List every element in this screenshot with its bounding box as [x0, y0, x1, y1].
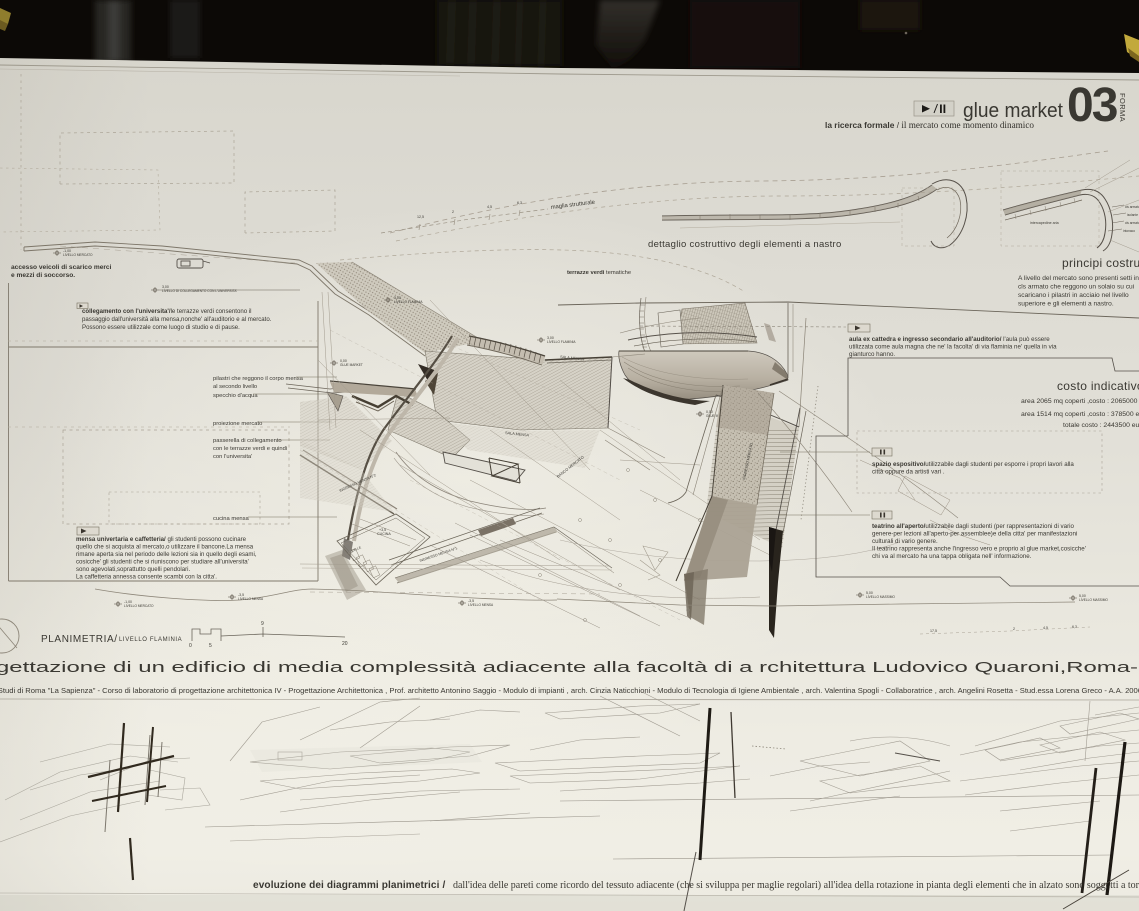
svg-text:2: 2: [1013, 627, 1015, 631]
svg-text:20: 20: [342, 641, 348, 647]
svg-text:LIVELLO MENSA: LIVELLO MENSA: [238, 597, 264, 601]
svg-text:aula ex cattedra e ingresso se: aula ex cattedra e ingresso secondario a…: [849, 336, 1050, 343]
svg-text:LIVELLO FLAMINIA: LIVELLO FLAMINIA: [547, 340, 576, 344]
svg-text:LIVELLO MERCATO: LIVELLO MERCATO: [124, 604, 154, 608]
svg-text:PLANIMETRIA/: PLANIMETRIA/: [41, 634, 118, 645]
svg-text:e mezzi di soccorso.: e mezzi di soccorso.: [11, 272, 75, 279]
svg-text:intonaco: intonaco: [1123, 229, 1135, 233]
svg-text:03: 03: [1067, 79, 1117, 132]
svg-text:con le terrazze verdi e quindi: con le terrazze verdi e quindi: [213, 446, 287, 452]
svg-text:gianturco hanno.: gianturco hanno.: [849, 351, 895, 358]
svg-text:pilastri che reggono il corpo: pilastri che reggono il corpo mensa: [213, 376, 304, 382]
svg-text:area 1514 mq coperti ,costo :: area 1514 mq coperti ,costo : 378500 eur…: [1021, 411, 1139, 418]
svg-text:quello che si acquista al merc: quello che si acquista al mercato,o util…: [76, 544, 254, 551]
svg-text:CUCINA: CUCINA: [377, 532, 391, 536]
svg-text:LIVELLO FLAMINIA: LIVELLO FLAMINIA: [119, 637, 182, 643]
svg-text:GLUE MARKET: GLUE MARKET: [340, 363, 363, 367]
svg-text:rimane aperta sia nel periodo: rimane aperta sia nel periodo delle lezi…: [76, 551, 257, 558]
svg-text:9: 9: [261, 621, 264, 627]
svg-text:LIVELLO MASSIMO: LIVELLO MASSIMO: [1079, 598, 1108, 602]
svg-text:evoluzione dei diagrammi plani: evoluzione dei diagrammi planimetrici /: [253, 880, 445, 891]
svg-text:sono agevolati,soprattutto que: sono agevolati,soprattutto quelli pendol…: [76, 566, 190, 573]
svg-text:i Studi di Roma "La Sapienza": i Studi di Roma "La Sapienza" - Corso di…: [0, 686, 1139, 695]
svg-text:specchio d'acqua: specchio d'acqua: [213, 393, 258, 399]
svg-text:la ricerca formale / il mercat: la ricerca formale / il mercato come mom…: [825, 120, 1034, 130]
svg-text:passaggio dall'universitā alla: passaggio dall'universitā alla mensa,non…: [82, 316, 272, 323]
svg-text:gettazione di un edificio: gettazione di un edificio di media compl…: [0, 660, 1138, 676]
svg-text:La caffetteria annessa consent: La caffetteria annessa consente scambi c…: [76, 574, 217, 581]
svg-text:intercapedine aria: intercapedine aria: [1030, 221, 1059, 225]
svg-text:cosicche' gli studenti che si: cosicche' gli studenti che si riuniscono…: [76, 559, 249, 566]
svg-text:scaricano i pilastri in acciai: scaricano i pilastri in acciaio nel live…: [1018, 292, 1129, 299]
svg-text:cls armato che reggono un sol: cls armato che reggono un solaio su cui: [1018, 284, 1135, 291]
svg-text:superiore e gli elementi a nas: superiore e gli elementi a nastro.: [1018, 301, 1114, 308]
svg-text:A livello del mercato sono pre: A livello del mercato sono presenti sett…: [1018, 275, 1139, 282]
svg-text:genere-per lezioni all'aperto-: genere-per lezioni all'aperto-per assemb…: [872, 531, 1077, 538]
svg-text:5: 5: [209, 643, 212, 649]
svg-text:12,5: 12,5: [417, 215, 424, 219]
svg-text:Possono essere utilizzale come: Possono essere utilizzale come luogo di …: [82, 324, 240, 331]
svg-text:LIVELLO FLAMINIA: LIVELLO FLAMINIA: [394, 300, 423, 304]
svg-text:LIVELLO DI COLLEGAMENTO CON L': LIVELLO DI COLLEGAMENTO CON L'UNIVERSITA…: [162, 289, 238, 293]
svg-text:2: 2: [452, 210, 454, 214]
svg-text:proiezione mercato: proiezione mercato: [213, 421, 262, 427]
svg-text:isolante: isolante: [1127, 213, 1138, 217]
svg-text:passerella di collegamento: passerella di collegamento: [213, 438, 282, 444]
svg-text:totale costo : 2443500 euro: totale costo : 2443500 euro: [1063, 422, 1139, 429]
svg-text:cls armato: cls armato: [1125, 205, 1139, 209]
svg-text:6,3: 6,3: [517, 201, 522, 205]
svg-text:utilizzata come aula magna che: utilizzata come aula magna che ne' la fa…: [849, 344, 1057, 351]
svg-text:spazio espositivo/utilizzabile: spazio espositivo/utilizzabile dagli stu…: [872, 461, 1074, 468]
svg-text:costo indicativo per mq: costo indicativo per mq: [1057, 379, 1139, 393]
svg-text:17,5: 17,5: [930, 629, 937, 633]
svg-text:LIVELLO MASSIMO: LIVELLO MASSIMO: [866, 595, 895, 599]
svg-text:città oppure da artisti vari .: città oppure da artisti vari .: [872, 469, 945, 476]
svg-text:mensa univertaria e caffetteri: mensa univertaria e caffetteria/ gli stu…: [76, 536, 247, 543]
svg-text:glue market: glue market: [963, 99, 1063, 122]
svg-text:4,5: 4,5: [1043, 626, 1048, 630]
svg-text:4,5: 4,5: [487, 205, 492, 209]
svg-text:dettaglio costruttivo degli el: dettaglio costruttivo degli elementi a n…: [648, 239, 842, 250]
svg-text:LIVELLO MERCATO: LIVELLO MERCATO: [63, 253, 93, 257]
svg-text:al secondo livello: al secondo livello: [213, 384, 257, 390]
svg-text:0: 0: [189, 643, 192, 649]
svg-text:chi va al mercato ha una tappa: chi va al mercato ha una tappa obligata …: [872, 553, 1032, 560]
svg-text:area 2065 mq coperti ,costo :: area 2065 mq coperti ,costo : 2065000 eu…: [1021, 398, 1139, 405]
svg-text:6,3: 6,3: [1072, 625, 1077, 629]
svg-text:cucina mensa: cucina mensa: [213, 516, 250, 522]
svg-text:teatrino all'aperto/utilizzabi: teatrino all'aperto/utilizzabile dagli s…: [872, 523, 1075, 530]
svg-text:Il teatrino rappresenta anche: Il teatrino rappresenta anche l'ingresso…: [872, 546, 1086, 553]
svg-text:principi costruttivi: principi costruttivi: [1062, 256, 1139, 270]
svg-text:accesso veicoli di scarico mer: accesso veicoli di scarico merci: [11, 264, 112, 271]
svg-text:dall'idea delle pareti come ri: dall'idea delle pareti come ricordo del …: [453, 880, 1139, 891]
svg-text:culturali di vario genere.: culturali di vario genere.: [872, 538, 938, 545]
svg-text:con l'universita': con l'universita': [213, 454, 252, 460]
svg-text:terrazze verdi tematiche: terrazze verdi tematiche: [567, 270, 631, 276]
svg-text:LIVELLO MENSA: LIVELLO MENSA: [468, 603, 494, 607]
svg-text:FORMA: FORMA: [1118, 93, 1127, 122]
svg-text:collegamento con l'universita': collegamento con l'universita'/le terraz…: [82, 308, 252, 315]
svg-text:cls armato: cls armato: [1125, 221, 1139, 225]
